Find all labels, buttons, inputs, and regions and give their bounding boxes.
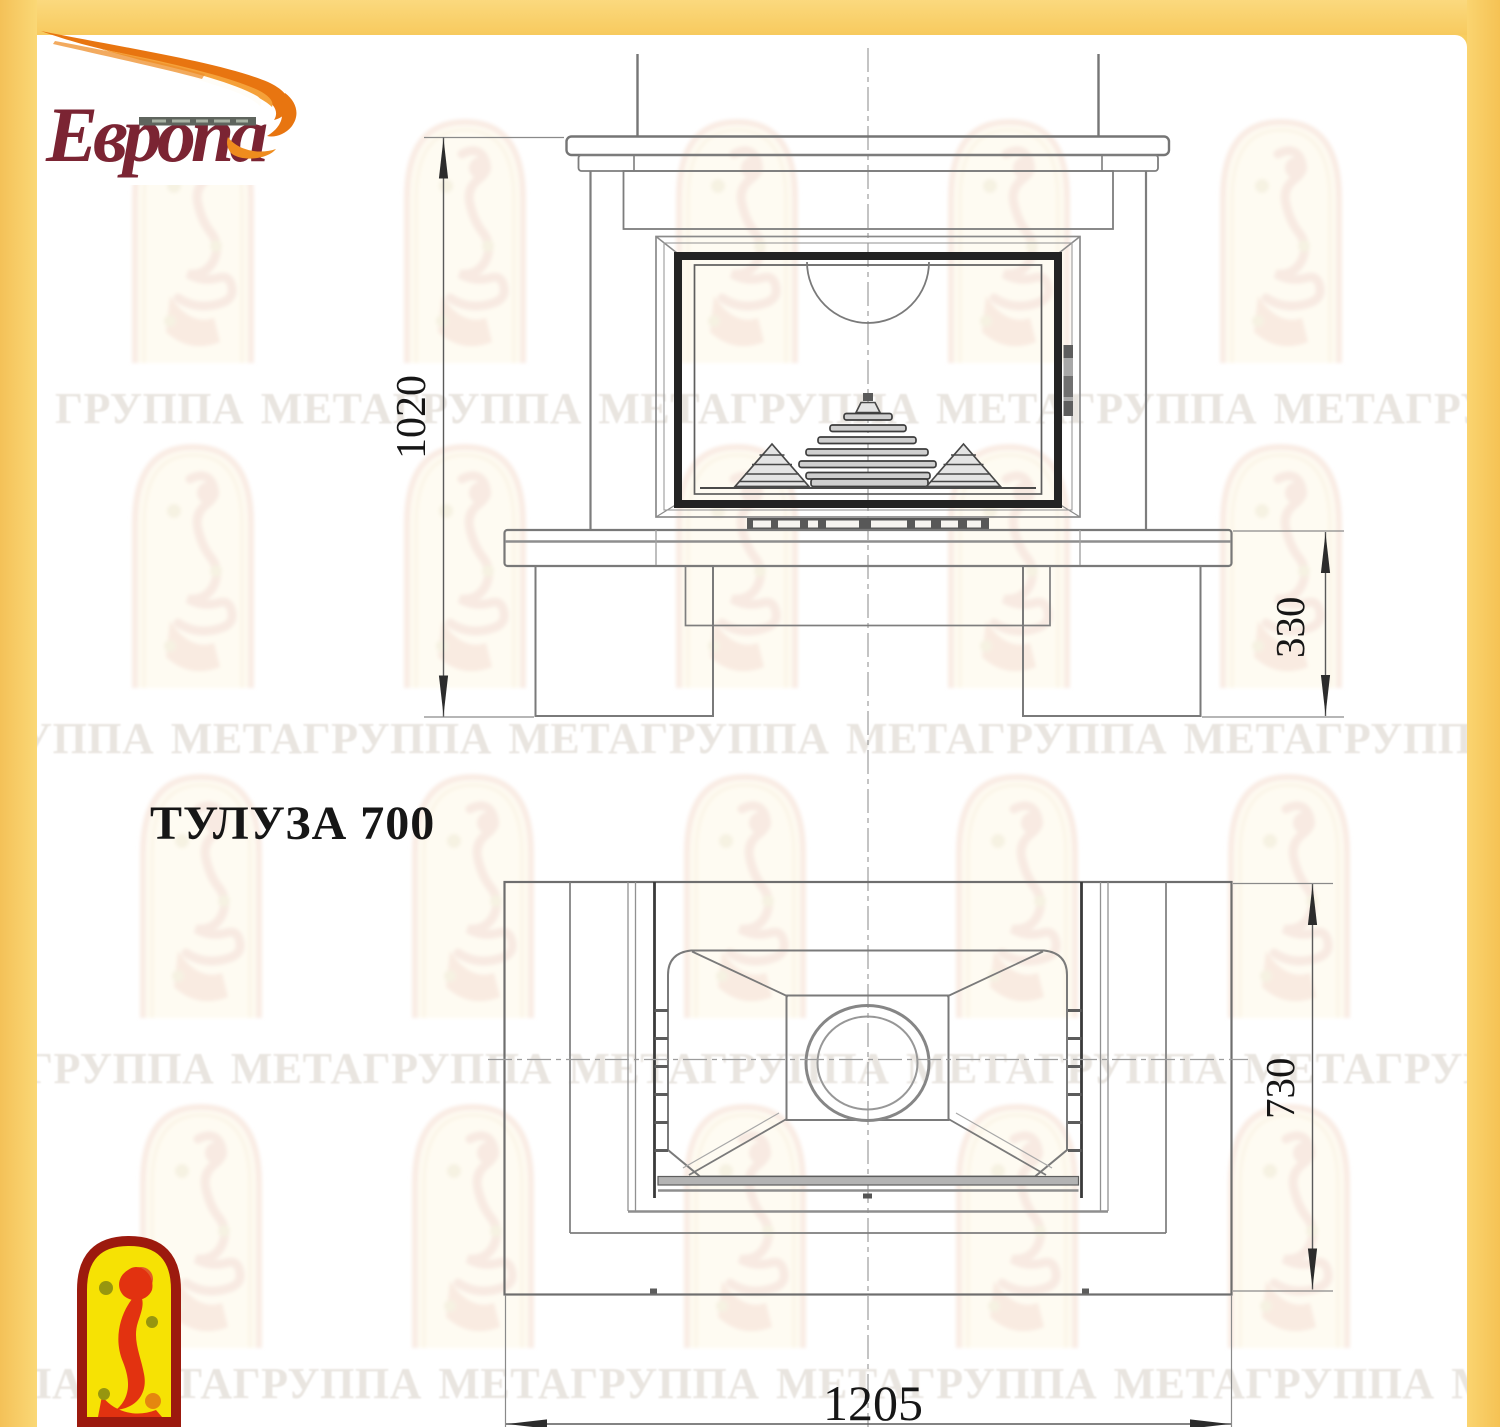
svg-text:1205: 1205 [823,1375,923,1427]
svg-text:ТУЛУЗА 700: ТУЛУЗА 700 [150,797,435,850]
svg-text:Европа: Европа [45,91,267,178]
svg-text:1020: 1020 [389,375,435,459]
svg-text:ГРУППА МЕТАГРУППА МЕТАГРУППА М: ГРУППА МЕТАГРУППА МЕТАГРУППА МЕТАГРУППА … [55,384,1500,433]
svg-text:330: 330 [1267,597,1313,659]
svg-text:ГРУППА МЕТАГРУППА МЕТАГРУППА М: ГРУППА МЕТАГРУППА МЕТАГРУППА МЕТАГРУППА … [0,714,1500,763]
svg-text:ГРУППА МЕТАГРУППА МЕТАГРУППА М: ГРУППА МЕТАГРУППА МЕТАГРУППА МЕТАГРУППА … [0,1359,1500,1408]
svg-text:730: 730 [1257,1058,1303,1120]
